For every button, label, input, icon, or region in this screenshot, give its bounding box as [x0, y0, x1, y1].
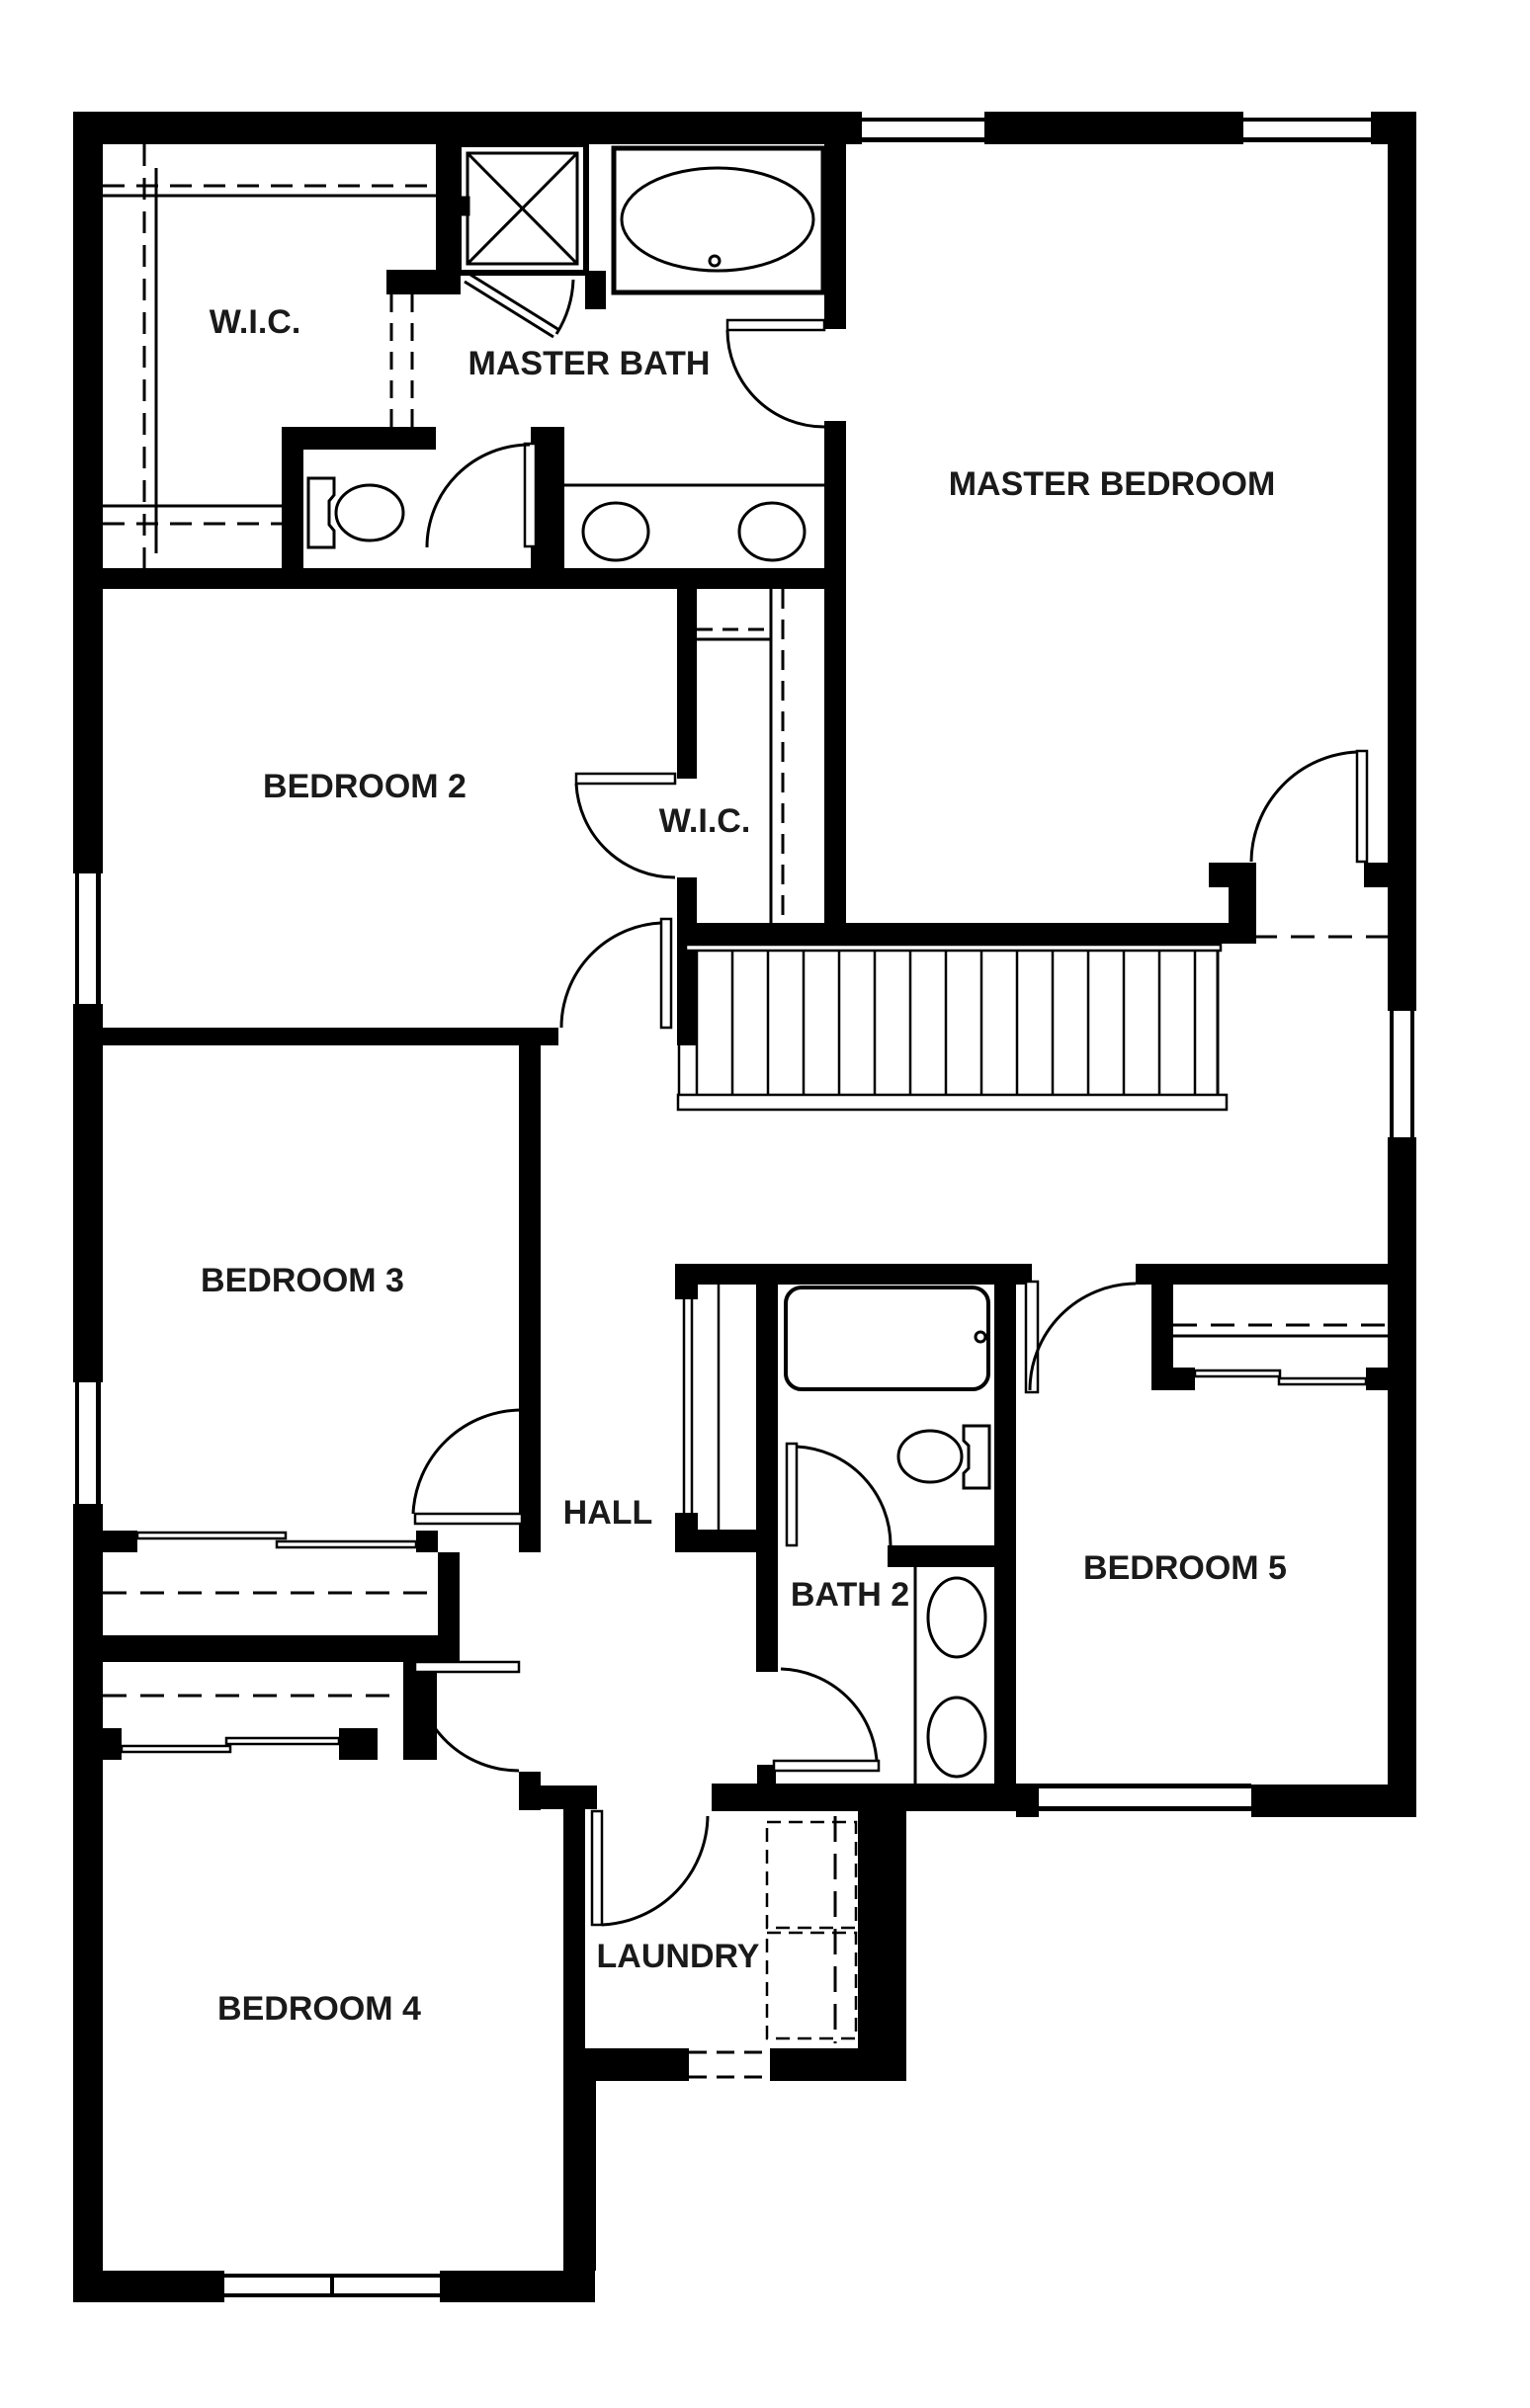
svg-text:BEDROOM 3: BEDROOM 3 [201, 1262, 404, 1299]
svg-text:W.I.C.: W.I.C. [210, 303, 301, 341]
svg-text:BATH 2: BATH 2 [791, 1576, 909, 1614]
svg-text:W.I.C.: W.I.C. [659, 802, 751, 840]
svg-text:BEDROOM 5: BEDROOM 5 [1083, 1549, 1287, 1587]
svg-text:BEDROOM 4: BEDROOM 4 [217, 1990, 421, 2028]
svg-text:MASTER BATH: MASTER BATH [468, 345, 711, 382]
svg-text:LAUNDRY: LAUNDRY [597, 1938, 760, 1975]
svg-text:HALL: HALL [563, 1494, 653, 1532]
svg-text:BEDROOM 2: BEDROOM 2 [263, 768, 467, 805]
svg-text:MASTER BEDROOM: MASTER BEDROOM [949, 465, 1276, 503]
